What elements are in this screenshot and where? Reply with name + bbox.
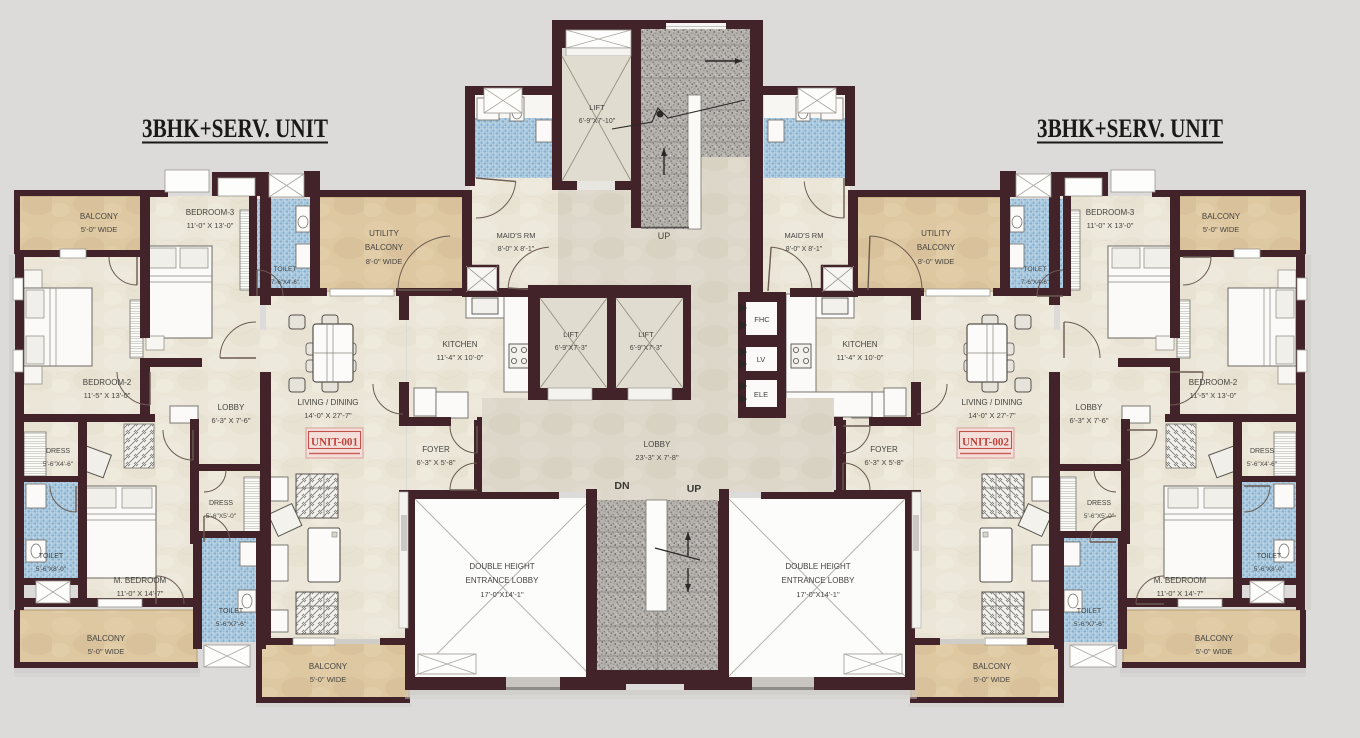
svg-text:17'-0"X14'-1": 17'-0"X14'-1" — [480, 590, 524, 599]
svg-text:5'-6"X7'-6": 5'-6"X7'-6" — [1074, 621, 1105, 628]
svg-text:DRESS: DRESS — [46, 448, 70, 455]
svg-text:8'-0" X 8'-1": 8'-0" X 8'-1" — [786, 246, 823, 253]
svg-text:5'-0" WIDE: 5'-0" WIDE — [974, 675, 1011, 684]
svg-text:BALCONY: BALCONY — [917, 243, 956, 252]
svg-text:LIFT: LIFT — [563, 330, 579, 339]
svg-text:6'-9"X7'-10": 6'-9"X7'-10" — [579, 118, 616, 125]
svg-text:11'-0" X 14'-7": 11'-0" X 14'-7" — [1157, 589, 1204, 598]
svg-text:5'-0" WIDE: 5'-0" WIDE — [1203, 225, 1240, 234]
svg-text:BALCONY: BALCONY — [80, 212, 119, 221]
svg-text:DOUBLE HEIGHT: DOUBLE HEIGHT — [469, 562, 534, 571]
svg-text:UNIT-001: UNIT-001 — [311, 435, 358, 449]
svg-text:5'-6"X5'-0": 5'-6"X5'-0" — [206, 513, 237, 520]
svg-text:TOILET: TOILET — [39, 553, 64, 560]
svg-text:5'-0" WIDE: 5'-0" WIDE — [310, 675, 347, 684]
svg-text:ENTRANCE LOBBY: ENTRANCE LOBBY — [466, 576, 540, 585]
svg-text:8'-0" WIDE: 8'-0" WIDE — [918, 257, 955, 266]
svg-text:LIFT: LIFT — [638, 330, 654, 339]
svg-text:11'-4" X 10'-0": 11'-4" X 10'-0" — [437, 353, 484, 362]
svg-text:5'-6"X4'-6": 5'-6"X4'-6" — [43, 461, 74, 468]
svg-text:DRESS: DRESS — [1250, 448, 1274, 455]
svg-text:5'-0" WIDE: 5'-0" WIDE — [81, 225, 118, 234]
svg-text:UTILITY: UTILITY — [369, 229, 399, 238]
svg-text:MAID'S RM: MAID'S RM — [497, 231, 536, 240]
svg-text:M. BEDROOM: M. BEDROOM — [1154, 576, 1207, 585]
svg-text:LV: LV — [757, 355, 766, 364]
svg-text:7'-6"X4'-6": 7'-6"X4'-6" — [1021, 280, 1049, 286]
svg-text:3BHK+SERV. UNIT: 3BHK+SERV. UNIT — [142, 114, 328, 143]
svg-text:TOILET: TOILET — [1077, 608, 1102, 615]
svg-text:FOYER: FOYER — [422, 445, 450, 454]
svg-text:M. BEDROOM: M. BEDROOM — [114, 576, 167, 585]
svg-text:ENTRANCE LOBBY: ENTRANCE LOBBY — [782, 576, 856, 585]
svg-text:UP: UP — [687, 483, 702, 495]
svg-text:DOUBLE HEIGHT: DOUBLE HEIGHT — [785, 562, 850, 571]
svg-text:UP: UP — [658, 231, 671, 241]
svg-text:14'-0" X 27'-7": 14'-0" X 27'-7" — [304, 411, 352, 420]
svg-text:BEDROOM-3: BEDROOM-3 — [186, 208, 235, 217]
svg-text:6'-3" X 5'-8": 6'-3" X 5'-8" — [864, 458, 903, 467]
svg-text:UNIT-002: UNIT-002 — [962, 435, 1009, 449]
svg-text:TOILET: TOILET — [274, 266, 297, 273]
svg-text:5'-6"X5'-0": 5'-6"X5'-0" — [1084, 513, 1115, 520]
svg-text:LIVING / DINING: LIVING / DINING — [298, 398, 359, 407]
svg-text:BEDROOM-2: BEDROOM-2 — [1189, 378, 1238, 387]
svg-text:DRESS: DRESS — [209, 500, 233, 507]
svg-text:11'-0" X 13'-0": 11'-0" X 13'-0" — [187, 221, 234, 230]
svg-text:BALCONY: BALCONY — [973, 662, 1012, 671]
svg-text:BALCONY: BALCONY — [309, 662, 348, 671]
svg-text:TOILET: TOILET — [1257, 553, 1282, 560]
svg-text:ELE: ELE — [754, 390, 768, 399]
svg-text:BALCONY: BALCONY — [365, 243, 404, 252]
svg-text:TOILET: TOILET — [1024, 266, 1047, 273]
svg-text:TOILET: TOILET — [219, 608, 244, 615]
svg-text:LIVING / DINING: LIVING / DINING — [962, 398, 1023, 407]
svg-text:BEDROOM-2: BEDROOM-2 — [83, 378, 132, 387]
svg-text:DN: DN — [614, 480, 629, 492]
svg-text:LIFT: LIFT — [589, 103, 605, 112]
svg-text:BALCONY: BALCONY — [1202, 212, 1241, 221]
svg-text:KITCHEN: KITCHEN — [842, 340, 877, 349]
svg-text:11'-5" X 13'-0": 11'-5" X 13'-0" — [84, 391, 131, 400]
svg-text:UTILITY: UTILITY — [921, 229, 951, 238]
svg-text:14'-0" X 27'-7": 14'-0" X 27'-7" — [968, 411, 1016, 420]
svg-text:6'-3" X 7'-6": 6'-3" X 7'-6" — [211, 416, 250, 425]
svg-text:6'-9"X7'-3": 6'-9"X7'-3" — [555, 345, 588, 352]
svg-text:5'-6"X8'-0": 5'-6"X8'-0" — [1254, 566, 1285, 573]
svg-text:FHC: FHC — [754, 315, 770, 324]
svg-text:8'-0" X 8'-1": 8'-0" X 8'-1" — [498, 246, 535, 253]
svg-text:11'-0" X 13'-0": 11'-0" X 13'-0" — [1087, 221, 1134, 230]
svg-text:8'-0" WIDE: 8'-0" WIDE — [366, 257, 403, 266]
svg-text:BALCONY: BALCONY — [1195, 634, 1234, 643]
svg-text:LOBBY: LOBBY — [1076, 403, 1103, 412]
svg-text:11'-5" X 13'-0": 11'-5" X 13'-0" — [1190, 391, 1237, 400]
svg-text:6'-9"X7'-3": 6'-9"X7'-3" — [630, 345, 663, 352]
svg-text:5'-0" WIDE: 5'-0" WIDE — [88, 647, 125, 656]
svg-text:BEDROOM-3: BEDROOM-3 — [1086, 208, 1135, 217]
svg-text:17'-0"X14'-1": 17'-0"X14'-1" — [796, 590, 840, 599]
svg-text:FOYER: FOYER — [870, 445, 898, 454]
svg-text:BALCONY: BALCONY — [87, 634, 126, 643]
svg-text:LOBBY: LOBBY — [218, 403, 245, 412]
svg-text:23'-3" X 7'-8": 23'-3" X 7'-8" — [635, 453, 679, 462]
svg-text:KITCHEN: KITCHEN — [442, 340, 477, 349]
svg-text:3BHK+SERV. UNIT: 3BHK+SERV. UNIT — [1037, 114, 1223, 143]
svg-text:11'-4" X 10'-0": 11'-4" X 10'-0" — [837, 353, 884, 362]
svg-text:6'-3" X 7'-6": 6'-3" X 7'-6" — [1069, 416, 1108, 425]
svg-text:5'-0" WIDE: 5'-0" WIDE — [1196, 647, 1233, 656]
svg-text:6'-3" X 5'-8": 6'-3" X 5'-8" — [416, 458, 455, 467]
svg-text:DRESS: DRESS — [1087, 500, 1111, 507]
svg-text:7'-6"X4'-6": 7'-6"X4'-6" — [271, 280, 299, 286]
svg-text:5'-6"X7'-6": 5'-6"X7'-6" — [216, 621, 247, 628]
svg-text:MAID'S RM: MAID'S RM — [785, 231, 824, 240]
svg-text:5'-6"X8'-0": 5'-6"X8'-0" — [36, 566, 67, 573]
svg-text:5'-6"X4'-6": 5'-6"X4'-6" — [1247, 461, 1278, 468]
svg-text:11'-0" X 14'-7": 11'-0" X 14'-7" — [117, 589, 164, 598]
svg-text:LOBBY: LOBBY — [644, 440, 671, 449]
